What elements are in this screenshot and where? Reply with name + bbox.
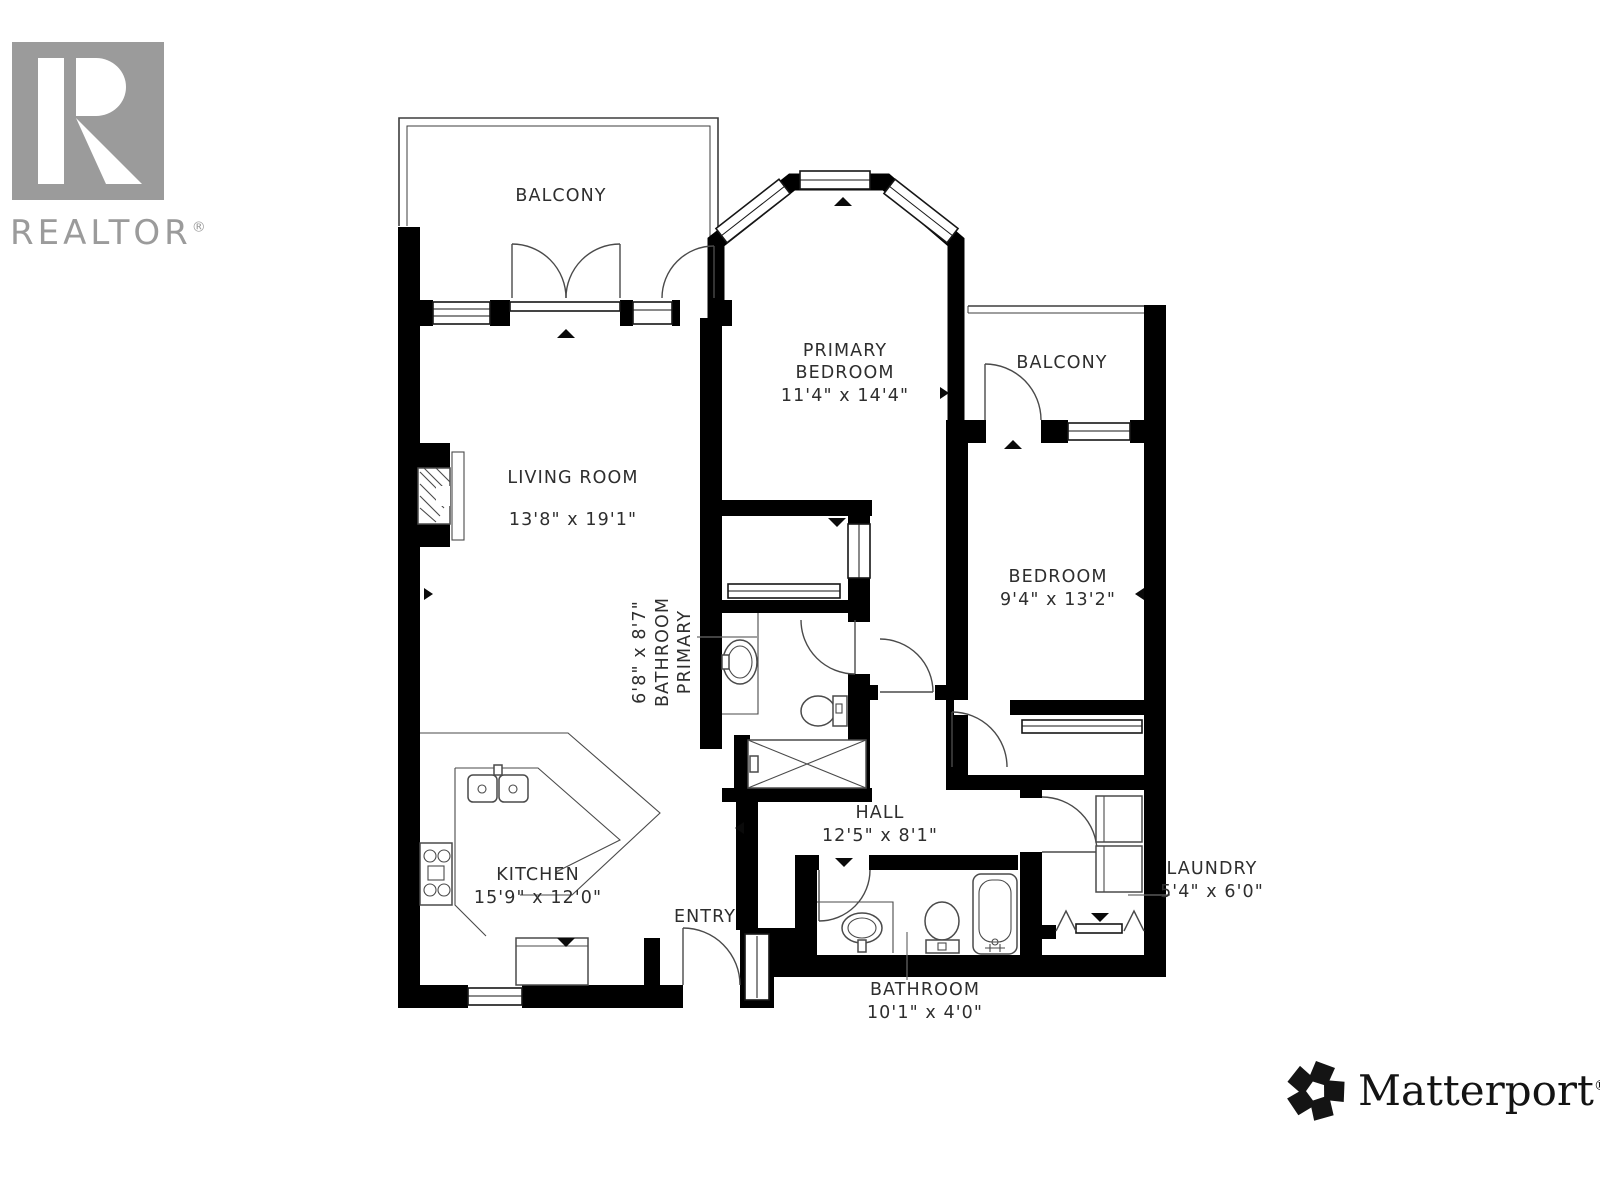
svg-text:12'5" x 8'1": 12'5" x 8'1" (822, 826, 938, 846)
svg-text:6'8" x 8'7": 6'8" x 8'7" (630, 600, 650, 704)
svg-text:HALL: HALL (855, 803, 904, 823)
stove (420, 843, 452, 905)
refrigerator (516, 938, 588, 985)
room-label-balcony-right: BALCONY (1016, 353, 1107, 373)
svg-text:10'1" x 4'0": 10'1" x 4'0" (867, 1003, 983, 1023)
room-label-primary-bedroom: PRIMARYBEDROOM11'4" x 14'4" (781, 341, 909, 406)
balcony-outlines (399, 118, 1146, 313)
svg-text:5'4" x 6'0": 5'4" x 6'0" (1160, 882, 1264, 902)
registered-mark-icon: ® (1594, 1078, 1600, 1094)
svg-text:ENTRY: ENTRY (674, 907, 736, 927)
washer-dryer (1096, 796, 1142, 892)
room-label-kitchen: KITCHEN15'9" x 12'0" (474, 865, 602, 908)
bathroom-fixtures (817, 874, 1017, 954)
room-label-primary-bathroom: PRIMARYBATHROOM6'8" x 8'7" (630, 597, 695, 707)
room-label-laundry: LAUNDRY5'4" x 6'0" (1160, 859, 1264, 902)
room-label-bathroom: BATHROOM10'1" x 4'0" (867, 980, 983, 1023)
kitchen-sink (468, 765, 528, 802)
matterport-wordmark: Matterport® (1358, 1066, 1600, 1115)
svg-text:BALCONY: BALCONY (1016, 353, 1107, 373)
svg-text:PRIMARY: PRIMARY (803, 341, 887, 361)
svg-text:KITCHEN: KITCHEN (496, 865, 580, 885)
svg-text:BALCONY: BALCONY (515, 186, 606, 206)
svg-text:PRIMARY: PRIMARY (675, 610, 695, 694)
svg-text:11'4" x 14'4": 11'4" x 14'4" (781, 386, 909, 406)
matterport-icon (1284, 1058, 1348, 1122)
svg-text:9'4" x 13'2": 9'4" x 13'2" (1000, 590, 1116, 610)
room-label-bedroom: BEDROOM9'4" x 13'2" (1000, 567, 1116, 610)
floorplan-page: REALTOR® (0, 0, 1600, 1200)
room-label-living-room: LIVING ROOM13'8" x 19'1" (507, 468, 638, 530)
room-label-hall: HALL12'5" x 8'1" (822, 803, 938, 846)
room-label-balcony-top: BALCONY (515, 186, 606, 206)
svg-text:BATHROOM: BATHROOM (870, 980, 980, 1000)
svg-text:13'8" x 19'1": 13'8" x 19'1" (509, 510, 637, 530)
svg-text:15'9" x 12'0": 15'9" x 12'0" (474, 888, 602, 908)
room-label-entry: ENTRY (674, 907, 736, 927)
svg-text:BATHROOM: BATHROOM (653, 597, 673, 707)
matterport-logo: Matterport® (1284, 1058, 1600, 1122)
svg-text:LIVING ROOM: LIVING ROOM (507, 468, 638, 488)
svg-text:LAUNDRY: LAUNDRY (1167, 859, 1258, 879)
svg-text:BEDROOM: BEDROOM (1008, 567, 1107, 587)
floorplan-drawing: BALCONYPRIMARYBEDROOM11'4" x 14'4"BALCON… (0, 0, 1600, 1200)
svg-text:BEDROOM: BEDROOM (795, 363, 894, 383)
